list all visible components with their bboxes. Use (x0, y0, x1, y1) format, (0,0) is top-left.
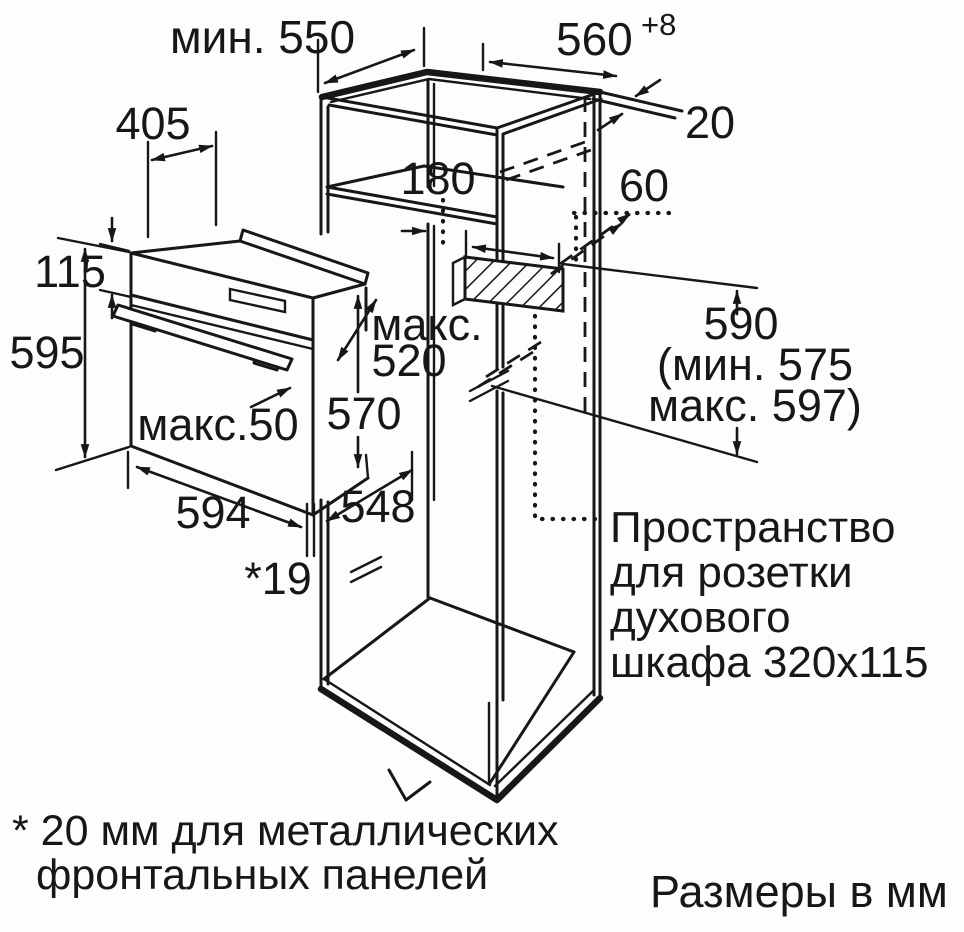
socket-note-line-4: шкафа 320x115 (610, 638, 928, 687)
dim-label-body-height: 570 (326, 388, 401, 439)
dim-label-oven-width: 594 (175, 487, 250, 538)
footnote-line-2: фронтальных панелей (36, 851, 488, 899)
dim-label-front-strip: 115 (34, 246, 106, 297)
dim-label-top-depth: 405 (115, 98, 190, 149)
footnote-line-1: * 20 мм для металлических (12, 807, 559, 855)
socket-note: Пространство для розетки духового шкафа … (610, 503, 928, 687)
dim-label-min-depth: мин. 550 (170, 11, 355, 63)
footnote-arrow (389, 770, 430, 800)
socket-note-line-1: Пространство (610, 503, 895, 552)
dim-label-front-gap: *19 (244, 553, 312, 604)
socket-note-line-2: для розетки (610, 548, 853, 597)
dim-label-handle-max: макс.50 (137, 399, 298, 450)
dim-label-niche-height-max: макс. 597) (648, 380, 862, 431)
dim-label-upper-niche: 180 (400, 153, 475, 204)
dim-label-front-height: 595 (9, 327, 84, 378)
dim-label-wall-thickness: 20 (685, 97, 735, 148)
installation-diagram-page: мин. 550 560 +8 405 20 180 60 115 595 ма… (0, 0, 964, 932)
dim-label-niche-width: 560 (556, 13, 633, 65)
socket-space-hatch (453, 214, 630, 519)
dim-label-socket-offset: 60 (619, 160, 669, 211)
footnote: * 20 мм для металлических фронтальных па… (12, 807, 559, 899)
units-note: Размеры в мм (650, 866, 948, 917)
dim-label-body-depth: 548 (340, 481, 415, 532)
dim-label-max-depth: 520 (371, 335, 446, 386)
socket-note-line-3: духового (610, 593, 791, 642)
dim-label-niche-width-tolerance: +8 (641, 7, 676, 42)
installation-diagram: мин. 550 560 +8 405 20 180 60 115 595 ма… (0, 0, 964, 932)
